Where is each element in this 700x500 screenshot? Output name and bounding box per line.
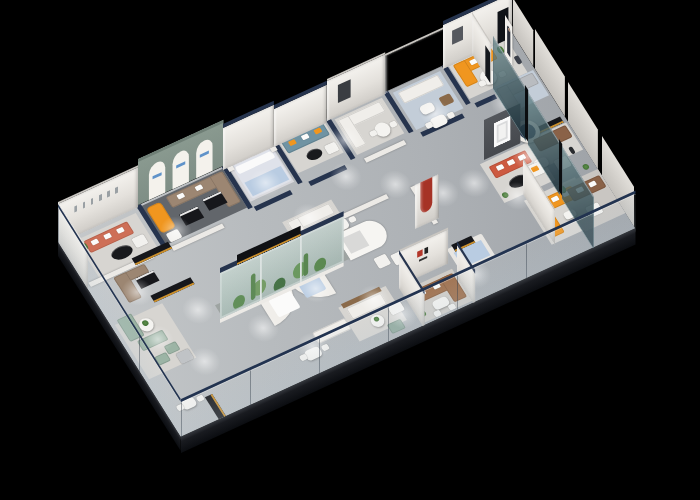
red-curve-band xyxy=(421,177,433,214)
wall-artwork xyxy=(452,26,463,45)
wall-art-strip xyxy=(74,186,119,213)
logo-mark-red xyxy=(417,250,422,259)
showroom-render xyxy=(0,0,700,500)
logo-mark-black xyxy=(419,256,427,262)
tv-screen xyxy=(494,116,510,148)
wall-artwork xyxy=(338,79,351,103)
logo-mark-black xyxy=(424,247,428,255)
